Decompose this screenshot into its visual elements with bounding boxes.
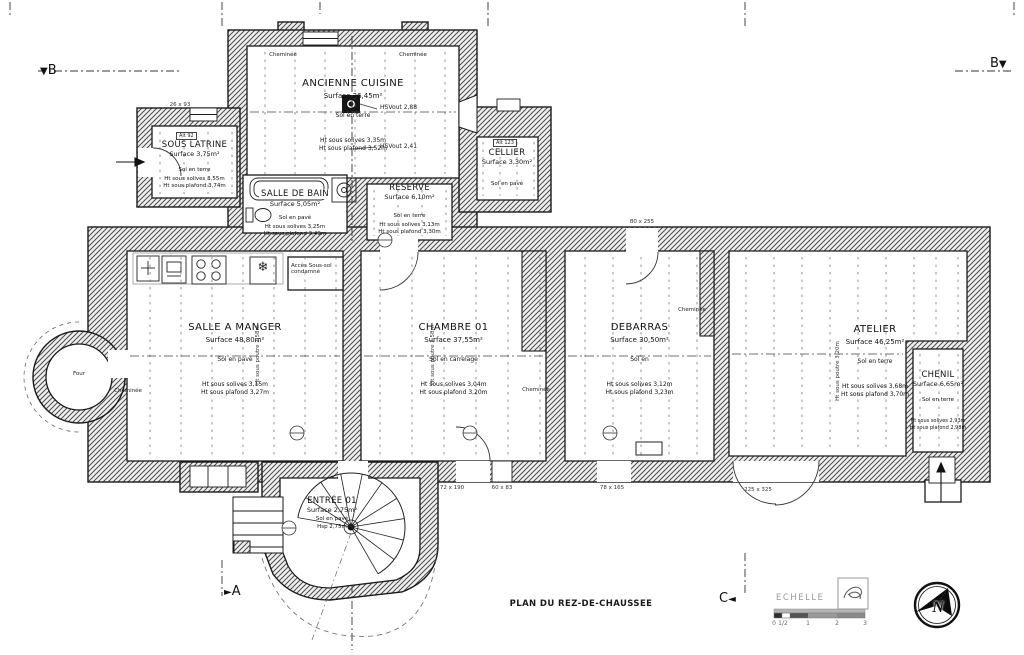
room-label-debarras: DEBARRAS Surface 30,50m² Sol en Ht sous …	[565, 322, 714, 396]
room-label-reserve: RÉSERVE Surface 6,10m² Sol en terre Ht s…	[367, 183, 452, 236]
room-surface: Surface 26,45m²	[247, 92, 459, 100]
section-marker-b-right: B▼	[990, 56, 1007, 71]
beam-height-chambre-01: Ht sous poutre 2,58m	[430, 300, 436, 410]
scale-stamp	[838, 578, 868, 609]
room-height: Ht sous solives 2,93m	[908, 418, 968, 424]
room-floor: Sol en terre	[908, 397, 968, 404]
room-height: Ht sous solives 3,12m	[565, 381, 714, 388]
room-floor: Sol en	[565, 356, 714, 363]
cheminee-label: Cheminée	[263, 52, 303, 58]
room-title: RÉSERVE	[367, 183, 452, 193]
room-height: Ht sous solives 3,25m	[243, 224, 347, 231]
room-height: Ht sous plafond 3,49m	[243, 231, 347, 238]
dim-door-chambre: 72 x 190	[432, 485, 472, 491]
room-height: Ht sous solives 3,13m	[367, 222, 452, 229]
triangle-right-icon: ►	[224, 587, 232, 598]
room-height: Ht sous plafond 3,30m	[367, 229, 452, 236]
room-entree	[280, 478, 420, 588]
freezer-icon: ❄	[250, 260, 276, 275]
room-floor: Sol en pavé	[127, 356, 343, 363]
room-surface: Surface 30,50m²	[565, 336, 714, 344]
room-height: Ht sous plafond 3,27m	[127, 389, 343, 396]
room-label-chenil: CHENIL Surface 6,65m² Sol en terre Ht so…	[908, 370, 968, 431]
room-floor: Sol en terre	[152, 167, 237, 174]
beam-height-salle-a-manger: Ht sous poutre 2,58m	[255, 300, 261, 410]
room-floor: Sol en pavé	[243, 215, 347, 222]
scale-label: ECHELLE	[776, 593, 824, 603]
room-title: SOUS LATRINE	[152, 140, 237, 150]
room-title: CELLIER	[471, 148, 543, 158]
room-height: Ht sous plafond 3,74m	[152, 183, 237, 190]
room-floor: Sol en terre	[367, 213, 452, 220]
room-floor: Sol en terre	[247, 112, 459, 119]
floor-plan-page: ANCIENNE CUISINE Surface 26,45m² Sol en …	[0, 0, 1024, 655]
room-label-ancienne-cuisine: ANCIENNE CUISINE Surface 26,45m² Sol en …	[247, 78, 459, 152]
room-title: SALLE A MANGER	[127, 322, 343, 334]
scale-bar	[774, 609, 865, 618]
cheminee-label: Cheminée	[672, 307, 712, 313]
page-title: PLAN DU REZ-DE-CHAUSSEE	[498, 599, 664, 609]
room-surface: Surface 46,25m²	[790, 338, 960, 346]
room-height: Hsp 2,75m	[278, 524, 386, 531]
room-floor: Sol en carrelage	[361, 356, 546, 363]
splayed-window-east	[459, 95, 477, 133]
room-surface: Surface 37,55m²	[361, 336, 546, 344]
hsv-top-label: HSVout 2,88	[380, 104, 417, 111]
room-surface: Surface 6,10m²	[367, 194, 452, 202]
compass-north-letter: N	[927, 599, 949, 617]
section-marker-a: ►A	[224, 584, 241, 599]
room-height: Ht sous plafond 3,52m	[247, 145, 459, 152]
room-label-sous-latrine: SOUS LATRINE Surface 3,75m² Sol en terre…	[152, 140, 237, 190]
triangle-down-icon: ▼	[999, 59, 1007, 70]
room-height: Ht sous solives 3,15m	[127, 381, 343, 388]
room-height: Ht sous plafond 3,23m	[565, 389, 714, 396]
room-floor: Sol en pavé	[471, 181, 543, 188]
room-surface: Surface 5,05m²	[243, 201, 347, 209]
cheminee-label: Cheminée	[108, 388, 148, 394]
room-four	[46, 344, 112, 410]
scale-tick: 2	[830, 620, 844, 627]
dim-door-debarras: 80 x 255	[622, 219, 662, 225]
room-surface: Surface 6,65m²	[908, 381, 968, 389]
room-label-cellier: CELLIER Surface 3,30m² Sol en pavé	[471, 148, 543, 188]
room-label-chambre-01: CHAMBRE 01 Surface 37,55m² Sol en carrel…	[361, 322, 546, 396]
porch-steps	[233, 497, 283, 553]
room-label-salle-de-bain: SALLE DE BAIN Surface 5,05m² Sol en pavé…	[243, 181, 347, 238]
scale-tick: 1	[801, 620, 815, 627]
room-title: ANCIENNE CUISINE	[247, 78, 459, 90]
four-label: Four	[59, 371, 99, 377]
room-title: ATELIER	[790, 324, 960, 336]
room-surface: Surface 3,30m²	[471, 159, 543, 167]
room-title: ENTRÉE 01	[278, 496, 386, 506]
room-floor: Sol en pavé	[278, 516, 386, 523]
room-surface: Surface 2,75m²	[278, 507, 386, 515]
scale-tick: 3	[858, 620, 872, 627]
room-height: Ht sous solives 3,55m	[152, 176, 237, 183]
room-title: SALLE DE BAIN	[259, 189, 331, 199]
basement-access-label: Accès Sous-sol condamné	[291, 263, 341, 275]
cheminee-label: Cheminée	[393, 52, 433, 58]
hsv-bottom-label: HSVout 2,41	[380, 143, 417, 150]
alt-label-sous-latrine: Alt 92	[176, 132, 197, 140]
room-title: CHENIL	[908, 370, 968, 380]
triangle-left-icon: ◄	[728, 594, 736, 605]
cheminee-label: Cheminée	[516, 387, 556, 393]
beam-height-atelier: Ht sous poutre 3,20m	[835, 316, 841, 426]
room-height: Ht sous plafond 2,98m	[908, 425, 968, 431]
room-label-salle-a-manger: SALLE A MANGER Surface 48,80m² Sol en pa…	[127, 322, 343, 396]
room-title: DEBARRAS	[565, 322, 714, 334]
triangle-down-icon: ▼	[40, 66, 48, 77]
alt-label-cellier: Alt 123	[493, 139, 517, 147]
room-height: Ht sous solives 3,35m	[247, 137, 459, 144]
room-surface: Surface 3,75m²	[152, 151, 237, 159]
room-label-entree-01: ENTRÉE 01 Surface 2,75m² Sol en pavé Hsp…	[278, 496, 386, 530]
section-marker-c: C◄	[719, 591, 736, 606]
room-title: CHAMBRE 01	[361, 322, 546, 334]
room-floor: Sol en terre	[790, 358, 960, 365]
electrical-panel-box	[636, 442, 662, 455]
dim-door-atelier: 225 x 325	[736, 487, 780, 493]
dim-door-debarras-s: 78 x 165	[592, 485, 632, 491]
section-marker-b-left: ▼B	[40, 63, 57, 78]
room-surface: Surface 48,80m²	[127, 336, 343, 344]
dim-window-chambre: 60 x 83	[482, 485, 522, 491]
scale-tick: 1/2	[776, 620, 790, 627]
dim-window-nw: 26 x 93	[160, 102, 200, 108]
